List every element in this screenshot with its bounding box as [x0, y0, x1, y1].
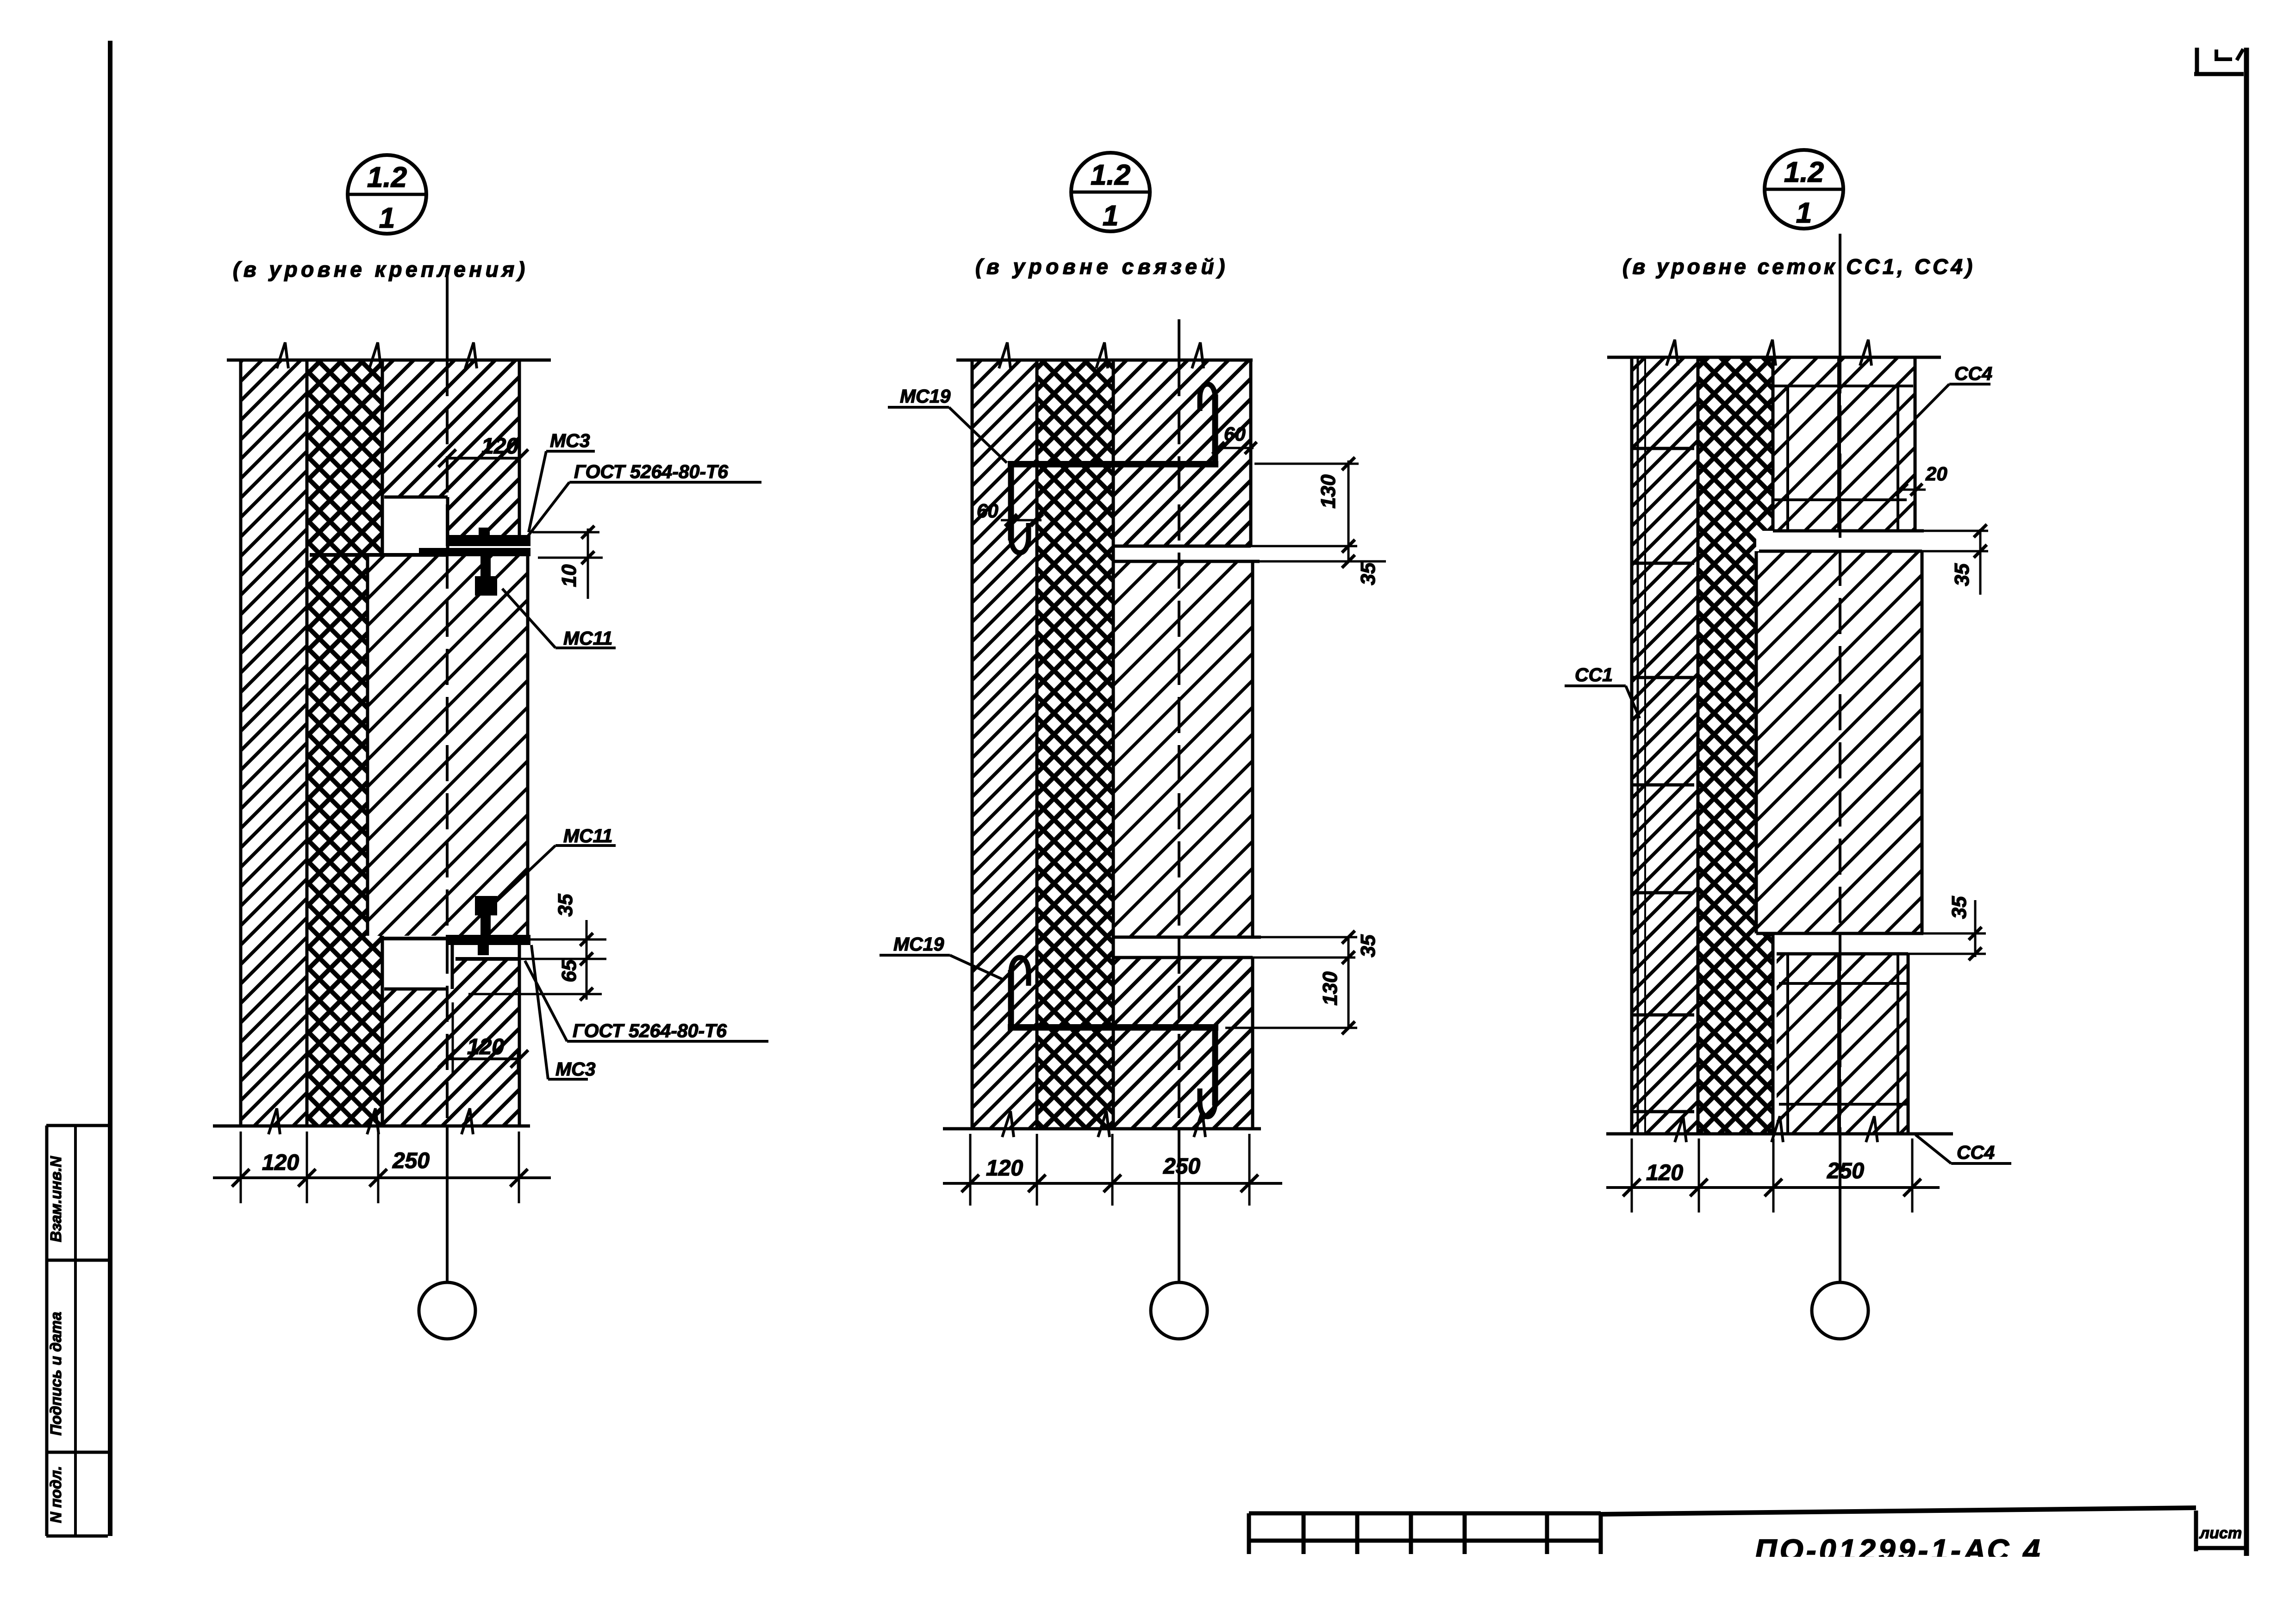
svg-text:250: 250 — [1827, 1159, 1864, 1183]
svg-text:120: 120 — [986, 1156, 1023, 1181]
svg-text:1.2: 1.2 — [1091, 159, 1130, 191]
svg-text:120: 120 — [1646, 1161, 1683, 1185]
svg-text:120: 120 — [467, 1035, 504, 1059]
svg-text:65: 65 — [558, 959, 580, 982]
svg-text:МС11: МС11 — [563, 825, 612, 846]
svg-text:60: 60 — [1224, 423, 1246, 445]
svg-text:120: 120 — [481, 434, 518, 459]
svg-text:МС11: МС11 — [563, 628, 612, 649]
svg-text:N подл.: N подл. — [47, 1466, 64, 1523]
svg-text:250: 250 — [1163, 1154, 1200, 1179]
svg-text:(в уровне связей): (в уровне связей) — [975, 255, 1229, 279]
svg-text:120: 120 — [262, 1150, 299, 1175]
svg-text:Подпись и дата: Подпись и дата — [47, 1312, 64, 1436]
svg-text:35: 35 — [1951, 563, 1973, 586]
svg-text:35: 35 — [554, 894, 577, 916]
svg-text:лист: лист — [2199, 1524, 2242, 1542]
svg-text:СС4: СС4 — [1957, 1142, 1995, 1163]
svg-text:Взам.инв.N: Взам.инв.N — [47, 1156, 64, 1242]
svg-text:СС1: СС1 — [1575, 664, 1613, 685]
svg-text:ГОСТ 5264-80-Т6: ГОСТ 5264-80-Т6 — [574, 461, 729, 482]
svg-text:МС3: МС3 — [550, 430, 590, 451]
svg-text:35: 35 — [1357, 934, 1379, 957]
svg-text:(в уровне сеток СС1, СС4): (в уровне сеток СС1, СС4) — [1622, 255, 1975, 279]
svg-text:10: 10 — [558, 564, 580, 587]
svg-text:1.2: 1.2 — [367, 162, 407, 193]
svg-text:35: 35 — [1948, 896, 1971, 919]
svg-text:1: 1 — [379, 202, 395, 234]
svg-text:250: 250 — [392, 1149, 430, 1173]
svg-text:МС19: МС19 — [900, 386, 951, 407]
svg-text:60: 60 — [977, 500, 998, 522]
svg-text:1.2: 1.2 — [1784, 156, 1824, 188]
svg-text:130: 130 — [1317, 474, 1340, 509]
svg-text:МС3: МС3 — [555, 1058, 596, 1080]
svg-text:130: 130 — [1319, 971, 1341, 1006]
svg-text:1: 1 — [1796, 197, 1812, 229]
svg-text:(в уровне крепления): (в уровне крепления) — [233, 257, 529, 281]
svg-text:ГОСТ 5264-80-Т6: ГОСТ 5264-80-Т6 — [573, 1020, 727, 1041]
svg-text:СС4: СС4 — [1954, 363, 1992, 384]
svg-text:35: 35 — [1357, 562, 1379, 585]
svg-text:МС19: МС19 — [893, 933, 944, 955]
svg-text:20: 20 — [1925, 463, 1947, 485]
svg-text:1: 1 — [1103, 200, 1118, 232]
